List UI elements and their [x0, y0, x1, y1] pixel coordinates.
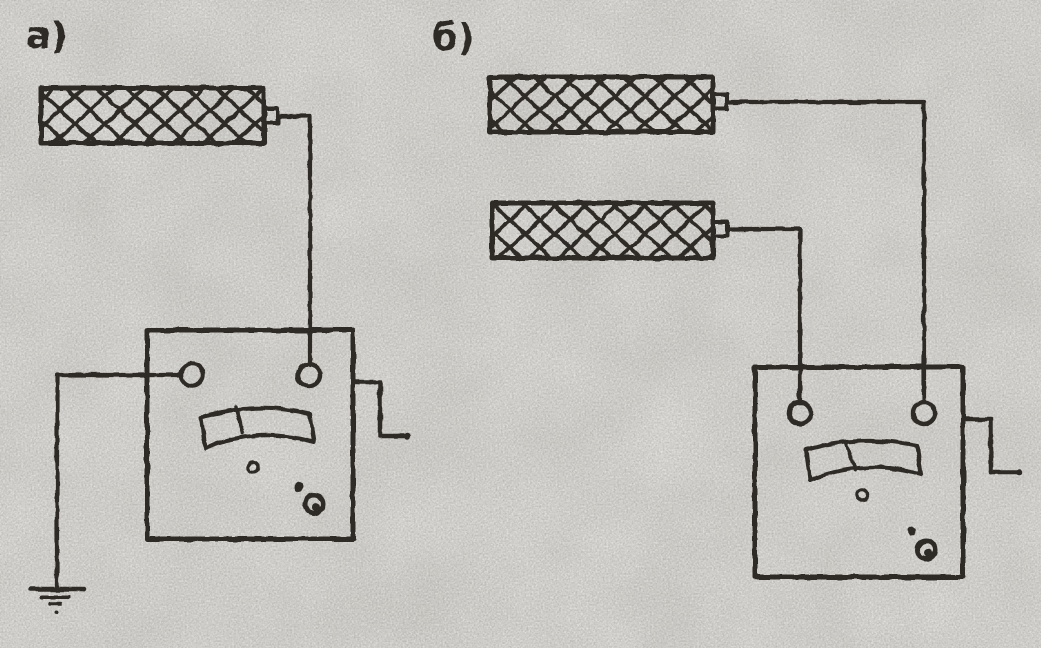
- crank-grip: [404, 433, 410, 439]
- panel-b-label: б): [432, 16, 475, 59]
- knob-blob: [312, 503, 320, 511]
- scanned-page: а): [0, 0, 1041, 648]
- knob-pointer-dot: [295, 483, 304, 492]
- hatched-sample-a: [41, 88, 278, 143]
- sample-body: [490, 77, 713, 132]
- panel-a-label: а): [26, 14, 68, 57]
- knob-blob: [924, 549, 932, 557]
- sample-body: [492, 203, 713, 258]
- knob-pointer-dot: [908, 527, 917, 536]
- hatched-sample-b-bottom: [492, 203, 727, 258]
- sample-body: [41, 88, 264, 143]
- hatched-sample-b-top: [490, 77, 727, 132]
- circuit-diagram: а): [0, 0, 1041, 648]
- crank-grip: [1016, 469, 1022, 475]
